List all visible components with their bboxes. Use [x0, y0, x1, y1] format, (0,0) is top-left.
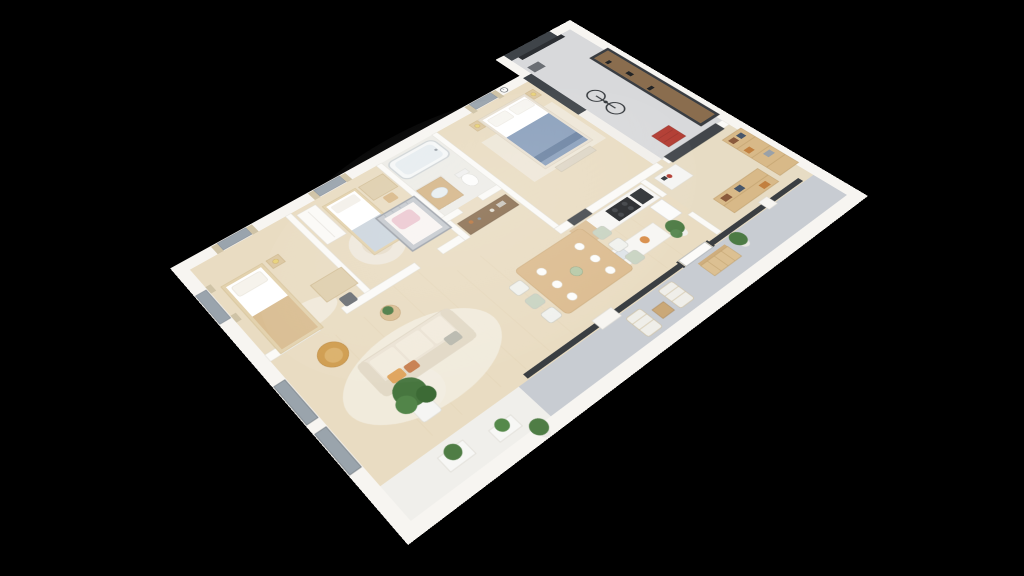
floorplan-canvas — [0, 0, 1024, 576]
floorplan-3d-view — [150, 20, 868, 545]
floorplan-scene — [150, 20, 868, 545]
